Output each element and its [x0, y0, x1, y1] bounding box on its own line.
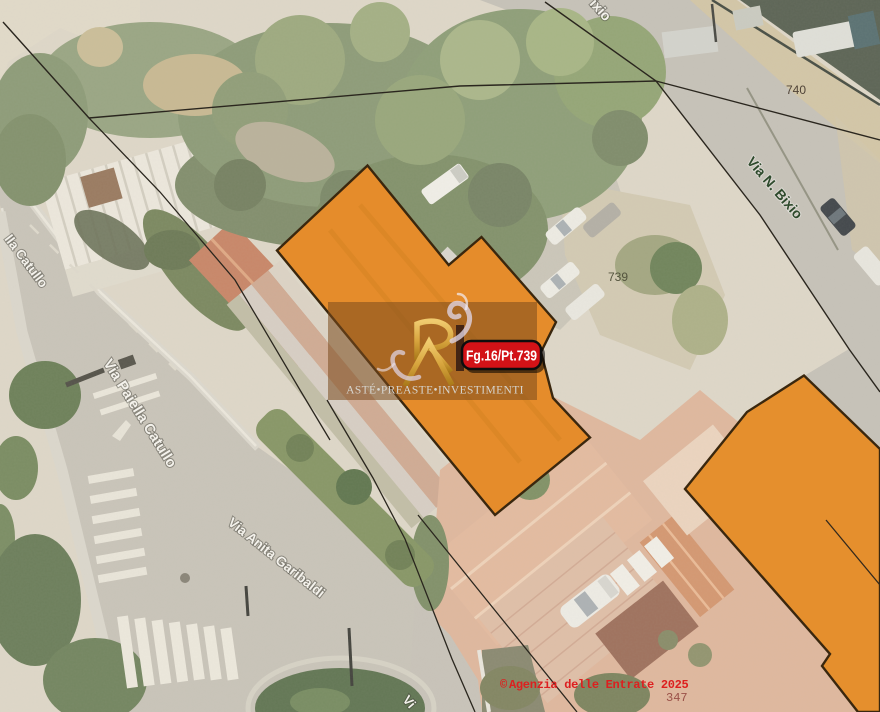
svg-text:ASTÉ•PREASTE•INVESTIMENTI: ASTÉ•PREASTE•INVESTIMENTI: [346, 383, 524, 397]
svg-text:739: 739: [608, 270, 628, 284]
svg-text:740: 740: [786, 83, 806, 97]
svg-text:© Agenzia delle Entrate 2025: © Agenzia delle Entrate 2025: [500, 678, 689, 692]
svg-text:Fg.16/Pt.739: Fg.16/Pt.739: [466, 349, 537, 365]
svg-text:347: 347: [666, 691, 688, 705]
